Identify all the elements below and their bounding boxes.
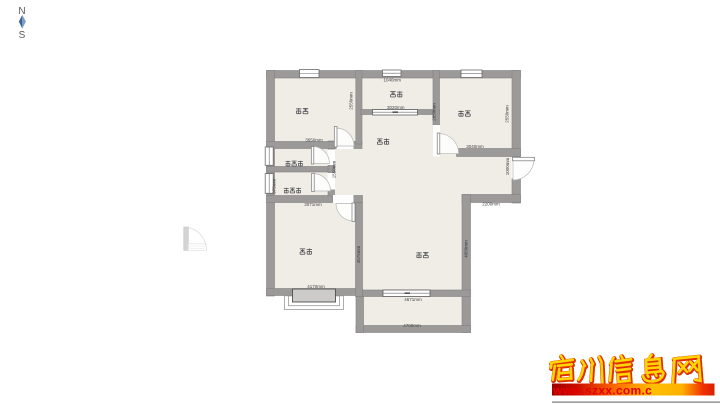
svg-text:3071mm: 3071mm (304, 202, 322, 207)
svg-text:3040mm: 3040mm (466, 144, 484, 149)
svg-text:4050mm: 4050mm (464, 240, 469, 258)
svg-text:4700mm: 4700mm (403, 323, 421, 328)
svg-text:2550mm: 2550mm (348, 92, 353, 110)
svg-text:4575mm: 4575mm (356, 245, 361, 263)
svg-text:4671mm: 4671mm (404, 297, 422, 302)
svg-text:1550mm: 1550mm (331, 160, 336, 178)
svg-text:975mm: 975mm (271, 179, 276, 194)
svg-text:1000mm: 1000mm (505, 157, 510, 175)
svg-text:3650mm: 3650mm (305, 138, 323, 143)
svg-text:4170mm: 4170mm (307, 284, 325, 289)
svg-text:3020mm: 3020mm (387, 105, 405, 110)
svg-text:2550mm: 2550mm (505, 105, 510, 123)
svg-text:1040mm: 1040mm (383, 77, 401, 82)
svg-text:2200mm: 2200mm (482, 202, 500, 207)
svg-text:N: N (18, 6, 25, 17)
svg-text:S: S (19, 30, 26, 41)
svg-text:2850mm: 2850mm (432, 103, 437, 121)
svg-text:www.szxx.com.c: www.szxx.com.c (552, 384, 652, 398)
